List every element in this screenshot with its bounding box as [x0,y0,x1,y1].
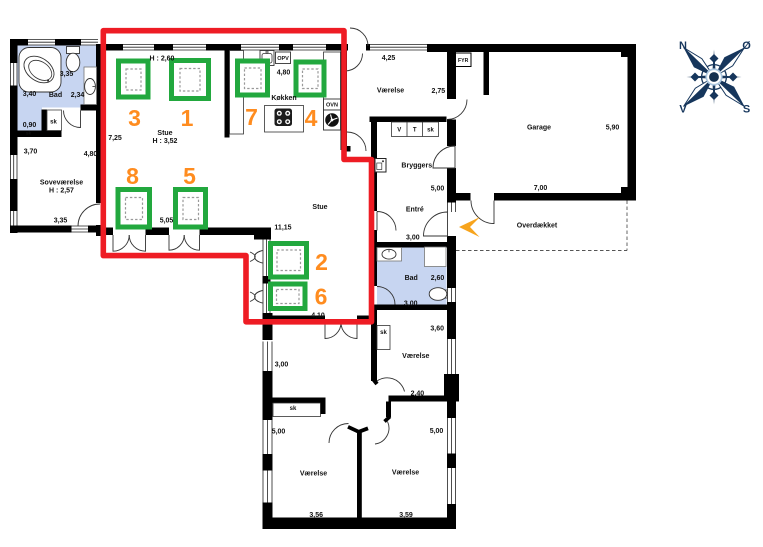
svg-text:8: 8 [126,163,139,189]
svg-text:Værelse: Værelse [377,87,404,94]
svg-text:2,60: 2,60 [431,275,445,282]
svg-text:3,56: 3,56 [309,512,323,519]
svg-text:0,90: 0,90 [23,122,37,129]
svg-text:OVN: OVN [326,103,338,109]
svg-text:sk: sk [50,120,57,126]
svg-text:5: 5 [183,163,196,189]
svg-text:Stue: Stue [157,130,172,137]
svg-text:3,00: 3,00 [404,300,418,307]
svg-text:Bad: Bad [405,275,418,282]
svg-text:S: S [743,104,750,116]
svg-text:4: 4 [305,105,318,131]
svg-text:N: N [679,40,687,52]
svg-text:7: 7 [245,104,258,130]
svg-text:Stue: Stue [312,204,327,211]
svg-text:sk: sk [290,406,297,412]
svg-text:Overdækket: Overdækket [517,223,558,230]
svg-text:2,75: 2,75 [431,88,445,95]
svg-text:3,59: 3,59 [399,512,413,519]
svg-text:Entré: Entré [406,207,424,214]
svg-text:Ø: Ø [742,40,751,52]
svg-text:FYR: FYR [458,58,469,64]
svg-text:H : 2,60: H : 2,60 [150,56,175,63]
svg-text:3,00: 3,00 [406,234,420,241]
svg-text:Værelse: Værelse [402,353,429,360]
svg-text:5,00: 5,00 [272,428,286,435]
svg-text:3,70: 3,70 [24,149,38,156]
svg-text:V: V [679,104,687,116]
svg-text:3,00: 3,00 [275,362,289,369]
svg-text:Værelse: Værelse [300,471,327,478]
svg-text:Køkken: Køkken [271,95,296,102]
svg-text:4,80: 4,80 [277,70,291,77]
svg-text:3,40: 3,40 [23,91,37,98]
svg-text:4,10: 4,10 [311,313,325,320]
svg-text:4,25: 4,25 [382,55,396,62]
svg-text:Værelse: Værelse [392,470,419,477]
svg-text:11,15: 11,15 [274,225,291,232]
svg-text:Soveværelse: Soveværelse [40,180,83,187]
svg-text:7,25: 7,25 [108,135,122,142]
svg-text:5,05: 5,05 [160,218,174,225]
svg-text:Bad: Bad [49,92,62,99]
svg-text:H : 2,57: H : 2,57 [49,188,74,195]
svg-text:5,90: 5,90 [606,125,620,132]
svg-text:2,34: 2,34 [71,92,85,99]
svg-text:H : 3,52: H : 3,52 [153,138,178,145]
svg-text:2: 2 [315,249,328,275]
svg-text:3: 3 [128,105,141,131]
svg-text:T: T [413,128,417,134]
svg-text:sk: sk [26,131,32,137]
svg-text:1: 1 [181,105,194,131]
svg-text:OPV: OPV [277,56,289,62]
svg-text:4,80: 4,80 [84,151,98,158]
svg-text:5,00: 5,00 [431,185,445,192]
svg-text:5,00: 5,00 [430,428,444,435]
svg-text:3,60: 3,60 [430,326,444,333]
svg-text:Bryggers: Bryggers [401,163,432,170]
svg-text:6: 6 [315,284,328,310]
svg-text:7,00: 7,00 [534,185,548,192]
svg-text:Garage: Garage [527,125,551,132]
svg-text:3,35: 3,35 [54,218,68,225]
svg-text:sk: sk [427,128,434,134]
svg-text:sk: sk [380,330,387,336]
svg-text:3,35: 3,35 [60,71,74,78]
svg-text:V: V [397,128,401,134]
svg-text:2,40: 2,40 [411,391,425,398]
